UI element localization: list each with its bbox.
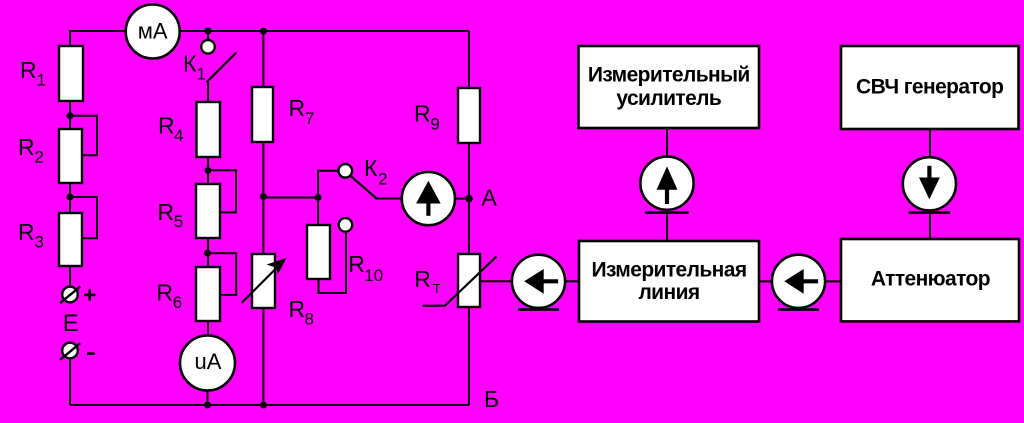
svg-text:R: R bbox=[18, 219, 35, 245]
svg-text:R: R bbox=[20, 57, 37, 83]
svg-text:10: 10 bbox=[364, 266, 383, 285]
svg-text:3: 3 bbox=[35, 233, 44, 252]
svg-text:К: К bbox=[183, 50, 197, 76]
svg-text:2: 2 bbox=[378, 170, 387, 189]
svg-text:Т: Т bbox=[433, 281, 441, 296]
svg-text:R: R bbox=[18, 134, 35, 160]
svg-text:Аттенюатор: Аттенюатор bbox=[871, 268, 990, 291]
svg-text:R: R bbox=[158, 113, 175, 139]
svg-text:мА: мА bbox=[138, 19, 168, 44]
svg-text:линия: линия bbox=[638, 281, 699, 304]
svg-text:6: 6 bbox=[173, 293, 182, 312]
svg-text:1: 1 bbox=[37, 71, 46, 90]
svg-text:5: 5 bbox=[174, 212, 183, 231]
svg-text:4: 4 bbox=[174, 126, 183, 145]
svg-text:Измерительная: Измерительная bbox=[592, 259, 747, 282]
svg-text:9: 9 bbox=[430, 115, 439, 134]
svg-text:СВЧ генератор: СВЧ генератор bbox=[856, 75, 1003, 98]
svg-text:R: R bbox=[414, 101, 431, 127]
svg-text:uA: uA bbox=[195, 349, 222, 374]
svg-text:R: R bbox=[289, 296, 306, 322]
svg-text:R: R bbox=[289, 95, 306, 121]
svg-text:8: 8 bbox=[305, 310, 314, 329]
svg-text:Измерительный: Измерительный bbox=[588, 64, 750, 87]
svg-text:7: 7 bbox=[305, 109, 314, 128]
svg-text:A: A bbox=[482, 184, 498, 210]
svg-text:R: R bbox=[414, 266, 431, 292]
svg-text:2: 2 bbox=[35, 148, 44, 167]
svg-text:1: 1 bbox=[197, 65, 206, 84]
svg-text:Б: Б bbox=[484, 386, 499, 412]
svg-text:усилитель: усилитель bbox=[616, 87, 721, 110]
svg-text:R: R bbox=[157, 199, 174, 225]
svg-text:R: R bbox=[156, 280, 173, 306]
svg-text:К: К bbox=[364, 155, 378, 181]
svg-text:R: R bbox=[348, 251, 365, 277]
svg-text:E: E bbox=[63, 310, 79, 337]
